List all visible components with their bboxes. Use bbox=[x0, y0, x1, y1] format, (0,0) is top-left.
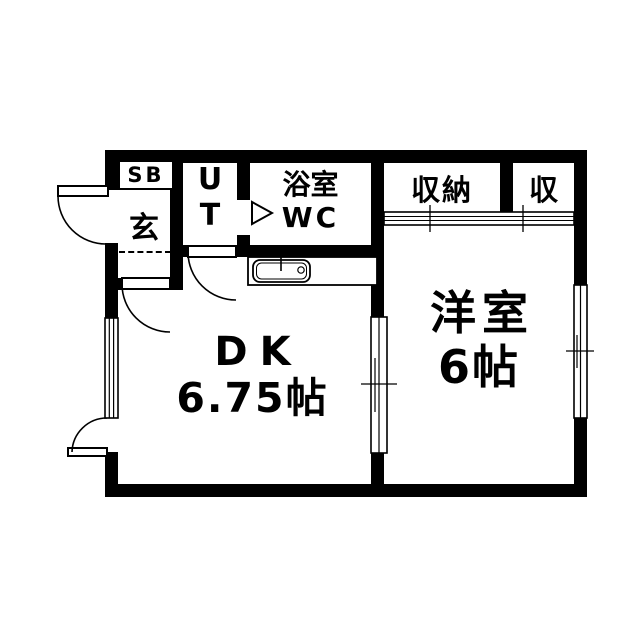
ut-door-arc bbox=[188, 252, 236, 300]
window-left bbox=[105, 318, 118, 418]
closet-main-label: 収納 bbox=[384, 167, 500, 209]
closet-sliding-doors bbox=[384, 205, 574, 232]
genkan-dk-door-arc bbox=[122, 284, 170, 332]
entrance-door-leaf bbox=[58, 186, 108, 196]
kitchen-counter bbox=[248, 250, 377, 285]
back-door-leaf bbox=[68, 448, 107, 456]
floor-plan-canvas: SB bbox=[0, 0, 640, 640]
ut-door-leaf bbox=[188, 246, 236, 257]
entrance-door-arc bbox=[58, 196, 106, 244]
genkan-dk-door-leaf bbox=[122, 278, 170, 289]
window-right bbox=[566, 285, 594, 418]
back-door-arc bbox=[72, 418, 107, 452]
bath-label: 浴室 WC bbox=[250, 168, 371, 234]
west-room-label: 洋室 6帖 bbox=[388, 286, 570, 394]
dk-label: DK 6.75帖 bbox=[140, 330, 365, 422]
closet-sub-label: 収 bbox=[513, 167, 574, 209]
ut-label: U T bbox=[183, 162, 237, 234]
genkan-label: 玄 bbox=[118, 203, 170, 247]
